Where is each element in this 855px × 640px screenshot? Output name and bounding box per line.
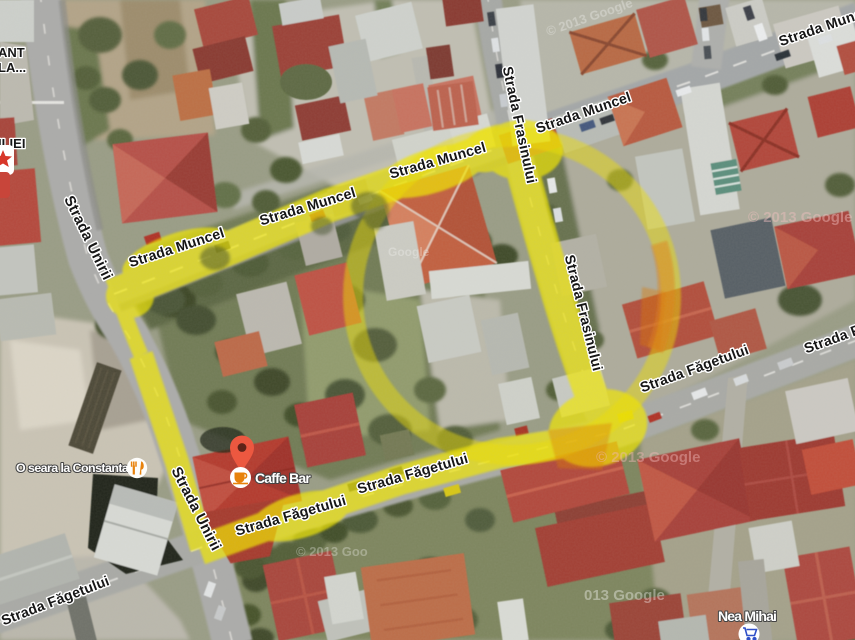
svg-text:Nea Mihai: Nea Mihai	[718, 608, 776, 624]
svg-text:Caffe Bar: Caffe Bar	[255, 470, 311, 486]
svg-text:LA...: LA...	[0, 60, 26, 75]
svg-text:O seara la Constanta: O seara la Constanta	[16, 461, 129, 475]
svg-text:ANT: ANT	[0, 45, 25, 60]
